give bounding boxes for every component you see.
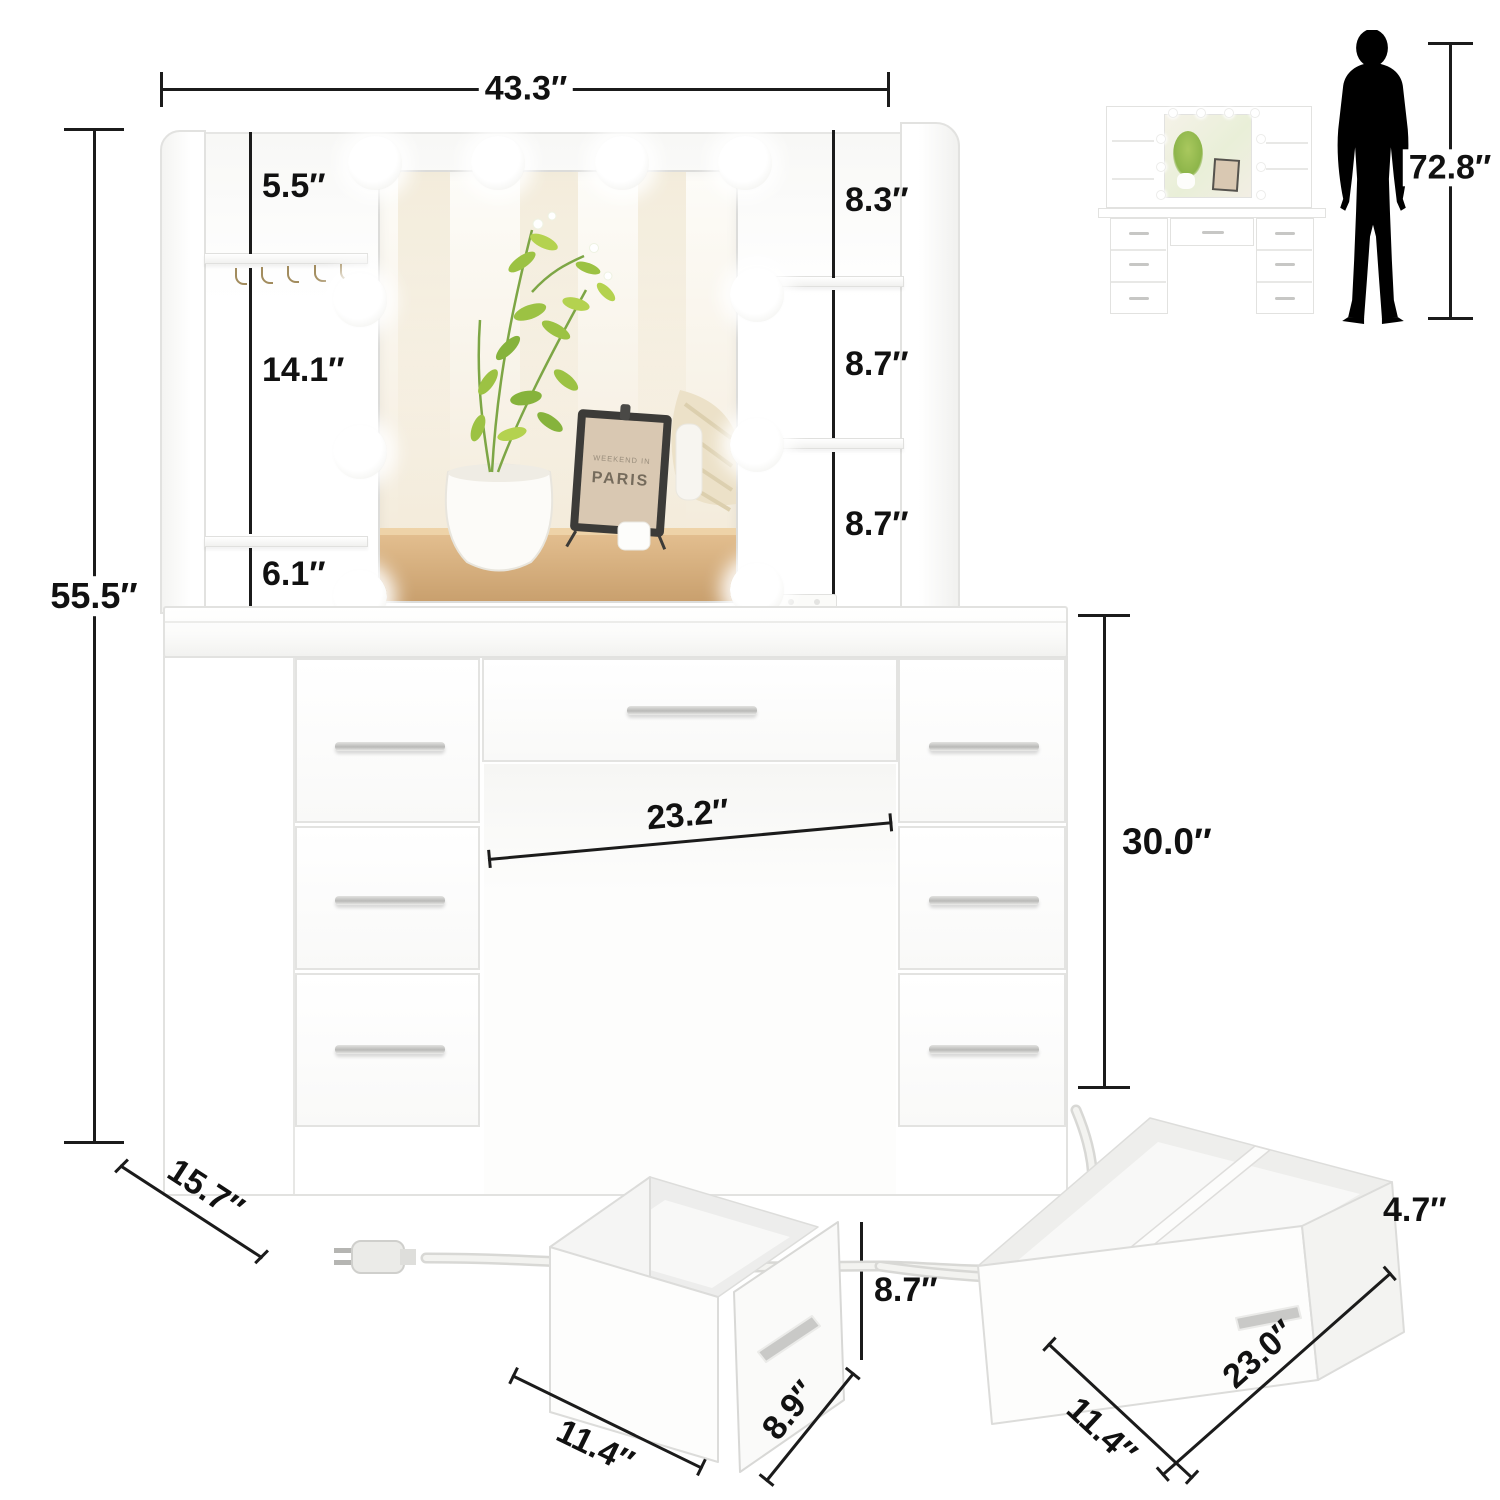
dim-line-large-drawer-width: 23.0″: [1161, 1272, 1392, 1477]
hutch-left-wall: [160, 130, 206, 614]
dim-line-small-drawer-width: 11.4″: [511, 1374, 703, 1470]
dim-line-desk-height: [1103, 616, 1106, 1088]
dim-knee-width: 23.2″: [645, 792, 731, 838]
left-drawer-3: [295, 973, 480, 1127]
dim-tick: [1078, 614, 1130, 617]
thumb-desktop: [1098, 208, 1326, 218]
dim-small-drawer-height: 8.7″: [874, 1272, 938, 1309]
dim-line-large-drawer-height: [1371, 1180, 1374, 1250]
thumb-right-drawers: [1256, 218, 1314, 314]
dim-line-shelf-left-middle: [249, 268, 252, 534]
dim-tick: [1383, 1266, 1397, 1281]
dim-large-drawer-height: 4.7″: [1383, 1192, 1447, 1229]
vanity-light-bulb: [333, 273, 387, 327]
dim-line-total-height: [93, 130, 96, 1144]
curtain-fold: [398, 172, 450, 552]
left-drawer-2: [295, 826, 480, 970]
dim-tick: [160, 72, 163, 107]
jewelry-hook: [235, 268, 247, 285]
dim-tick: [1042, 1337, 1056, 1352]
dim-person-height: 72.8″: [1403, 149, 1497, 186]
dim-total-height: 55.5″: [44, 576, 143, 616]
outlet-socket: [814, 599, 820, 605]
outlet-socket: [788, 599, 794, 605]
dim-tick: [114, 1158, 129, 1173]
mirror: WEEKEND IN PARIS: [378, 170, 738, 603]
dim-tick: [1078, 1086, 1130, 1089]
right-drawer-2: [898, 826, 1066, 970]
dim-tick: [64, 128, 124, 131]
left-lower-shelf: [204, 536, 368, 547]
dim-line-shelf-left-bottom: [249, 548, 252, 612]
dim-shelf-right-bottom: 8.7″: [845, 506, 909, 543]
drawer-handle: [929, 742, 1039, 751]
table-top: [380, 528, 736, 601]
dim-tick: [254, 1249, 269, 1264]
vanity-light-bulb: [595, 136, 649, 190]
dim-line-shelf-right-middle: [832, 290, 835, 438]
drawer-handle: [335, 742, 445, 751]
dim-large-drawer-width: 23.0″: [1216, 1313, 1304, 1397]
dim-small-drawer-depth: 8.9″: [755, 1374, 825, 1448]
desktop: [163, 606, 1068, 658]
dim-shelf-left-middle: 14.1″: [262, 352, 344, 389]
right-drawer-1: [898, 658, 1066, 823]
dim-top-width: 43.3″: [479, 70, 573, 107]
dim-shelf-right-top: 8.3″: [845, 182, 909, 219]
thumb-left-drawers: [1110, 218, 1168, 314]
hutch-right-wall: [900, 122, 960, 614]
dim-tick: [696, 1459, 707, 1476]
drawer-handle: [335, 896, 445, 905]
dim-line-shelf-right-top: [832, 130, 835, 278]
dim-tick: [1185, 1470, 1199, 1485]
drawer-handle: [929, 896, 1039, 905]
center-drawer: [482, 658, 898, 762]
vanity-light-bulb: [333, 425, 387, 479]
drawer-handle: [758, 1316, 820, 1362]
thumb-center-drawer: [1170, 218, 1254, 246]
dim-tick: [887, 72, 890, 107]
jewelry-hook: [287, 266, 299, 283]
drawer-handle: [627, 706, 757, 715]
vanity-light-bulb: [471, 136, 525, 190]
vanity-light-bulb: [718, 136, 772, 190]
thumb-mirror: [1164, 114, 1252, 198]
jewelry-hook: [261, 267, 273, 284]
dim-line-large-drawer-depth: 11.4″: [1047, 1342, 1194, 1479]
dim-desk-height: 30.0″: [1122, 822, 1212, 863]
vanity-light-bulb: [730, 268, 784, 322]
dim-tick: [1428, 42, 1473, 45]
vanity-light-bulb: [730, 418, 784, 472]
dim-tick: [759, 1473, 775, 1487]
dim-line-shelf-right-bottom: [832, 452, 835, 604]
dim-line-shelf-left-top: [249, 132, 252, 254]
dim-line-small-drawer-depth: 8.9″: [765, 1372, 855, 1483]
desk-body: [163, 656, 1068, 1196]
dim-small-drawer-width: 11.4″: [550, 1412, 640, 1482]
table-top-edge: [380, 528, 736, 535]
dim-shelf-left-bottom: 6.1″: [262, 556, 326, 593]
right-drawer-3: [898, 973, 1066, 1127]
scale-thumbnail-vanity: [1098, 100, 1326, 320]
dim-large-drawer-depth: 11.4″: [1059, 1390, 1145, 1473]
drawer-handle: [929, 1045, 1039, 1054]
cream-jar: [618, 522, 650, 550]
product-dimension-diagram: WEEKEND IN PARIS: [0, 0, 1500, 1500]
power-plug-icon: [334, 1241, 416, 1273]
drawer-handle: [335, 1045, 445, 1054]
dim-shelf-left-top: 5.5″: [262, 168, 326, 205]
dim-shelf-right-middle: 8.7″: [845, 346, 909, 383]
jewelry-hook: [314, 265, 326, 282]
dim-line-small-drawer-height: [860, 1222, 863, 1360]
bottle: [676, 424, 702, 500]
dim-tick: [1428, 317, 1473, 320]
vanity-light-bulb: [348, 136, 402, 190]
left-drawer-1: [295, 658, 480, 823]
dim-tick: [508, 1367, 519, 1384]
dim-tick: [1156, 1466, 1170, 1481]
dim-tick: [64, 1141, 124, 1144]
left-upper-shelf: [204, 253, 368, 264]
dim-tick: [845, 1367, 861, 1381]
mirror-reflection-scene: WEEKEND IN PARIS: [380, 172, 736, 601]
